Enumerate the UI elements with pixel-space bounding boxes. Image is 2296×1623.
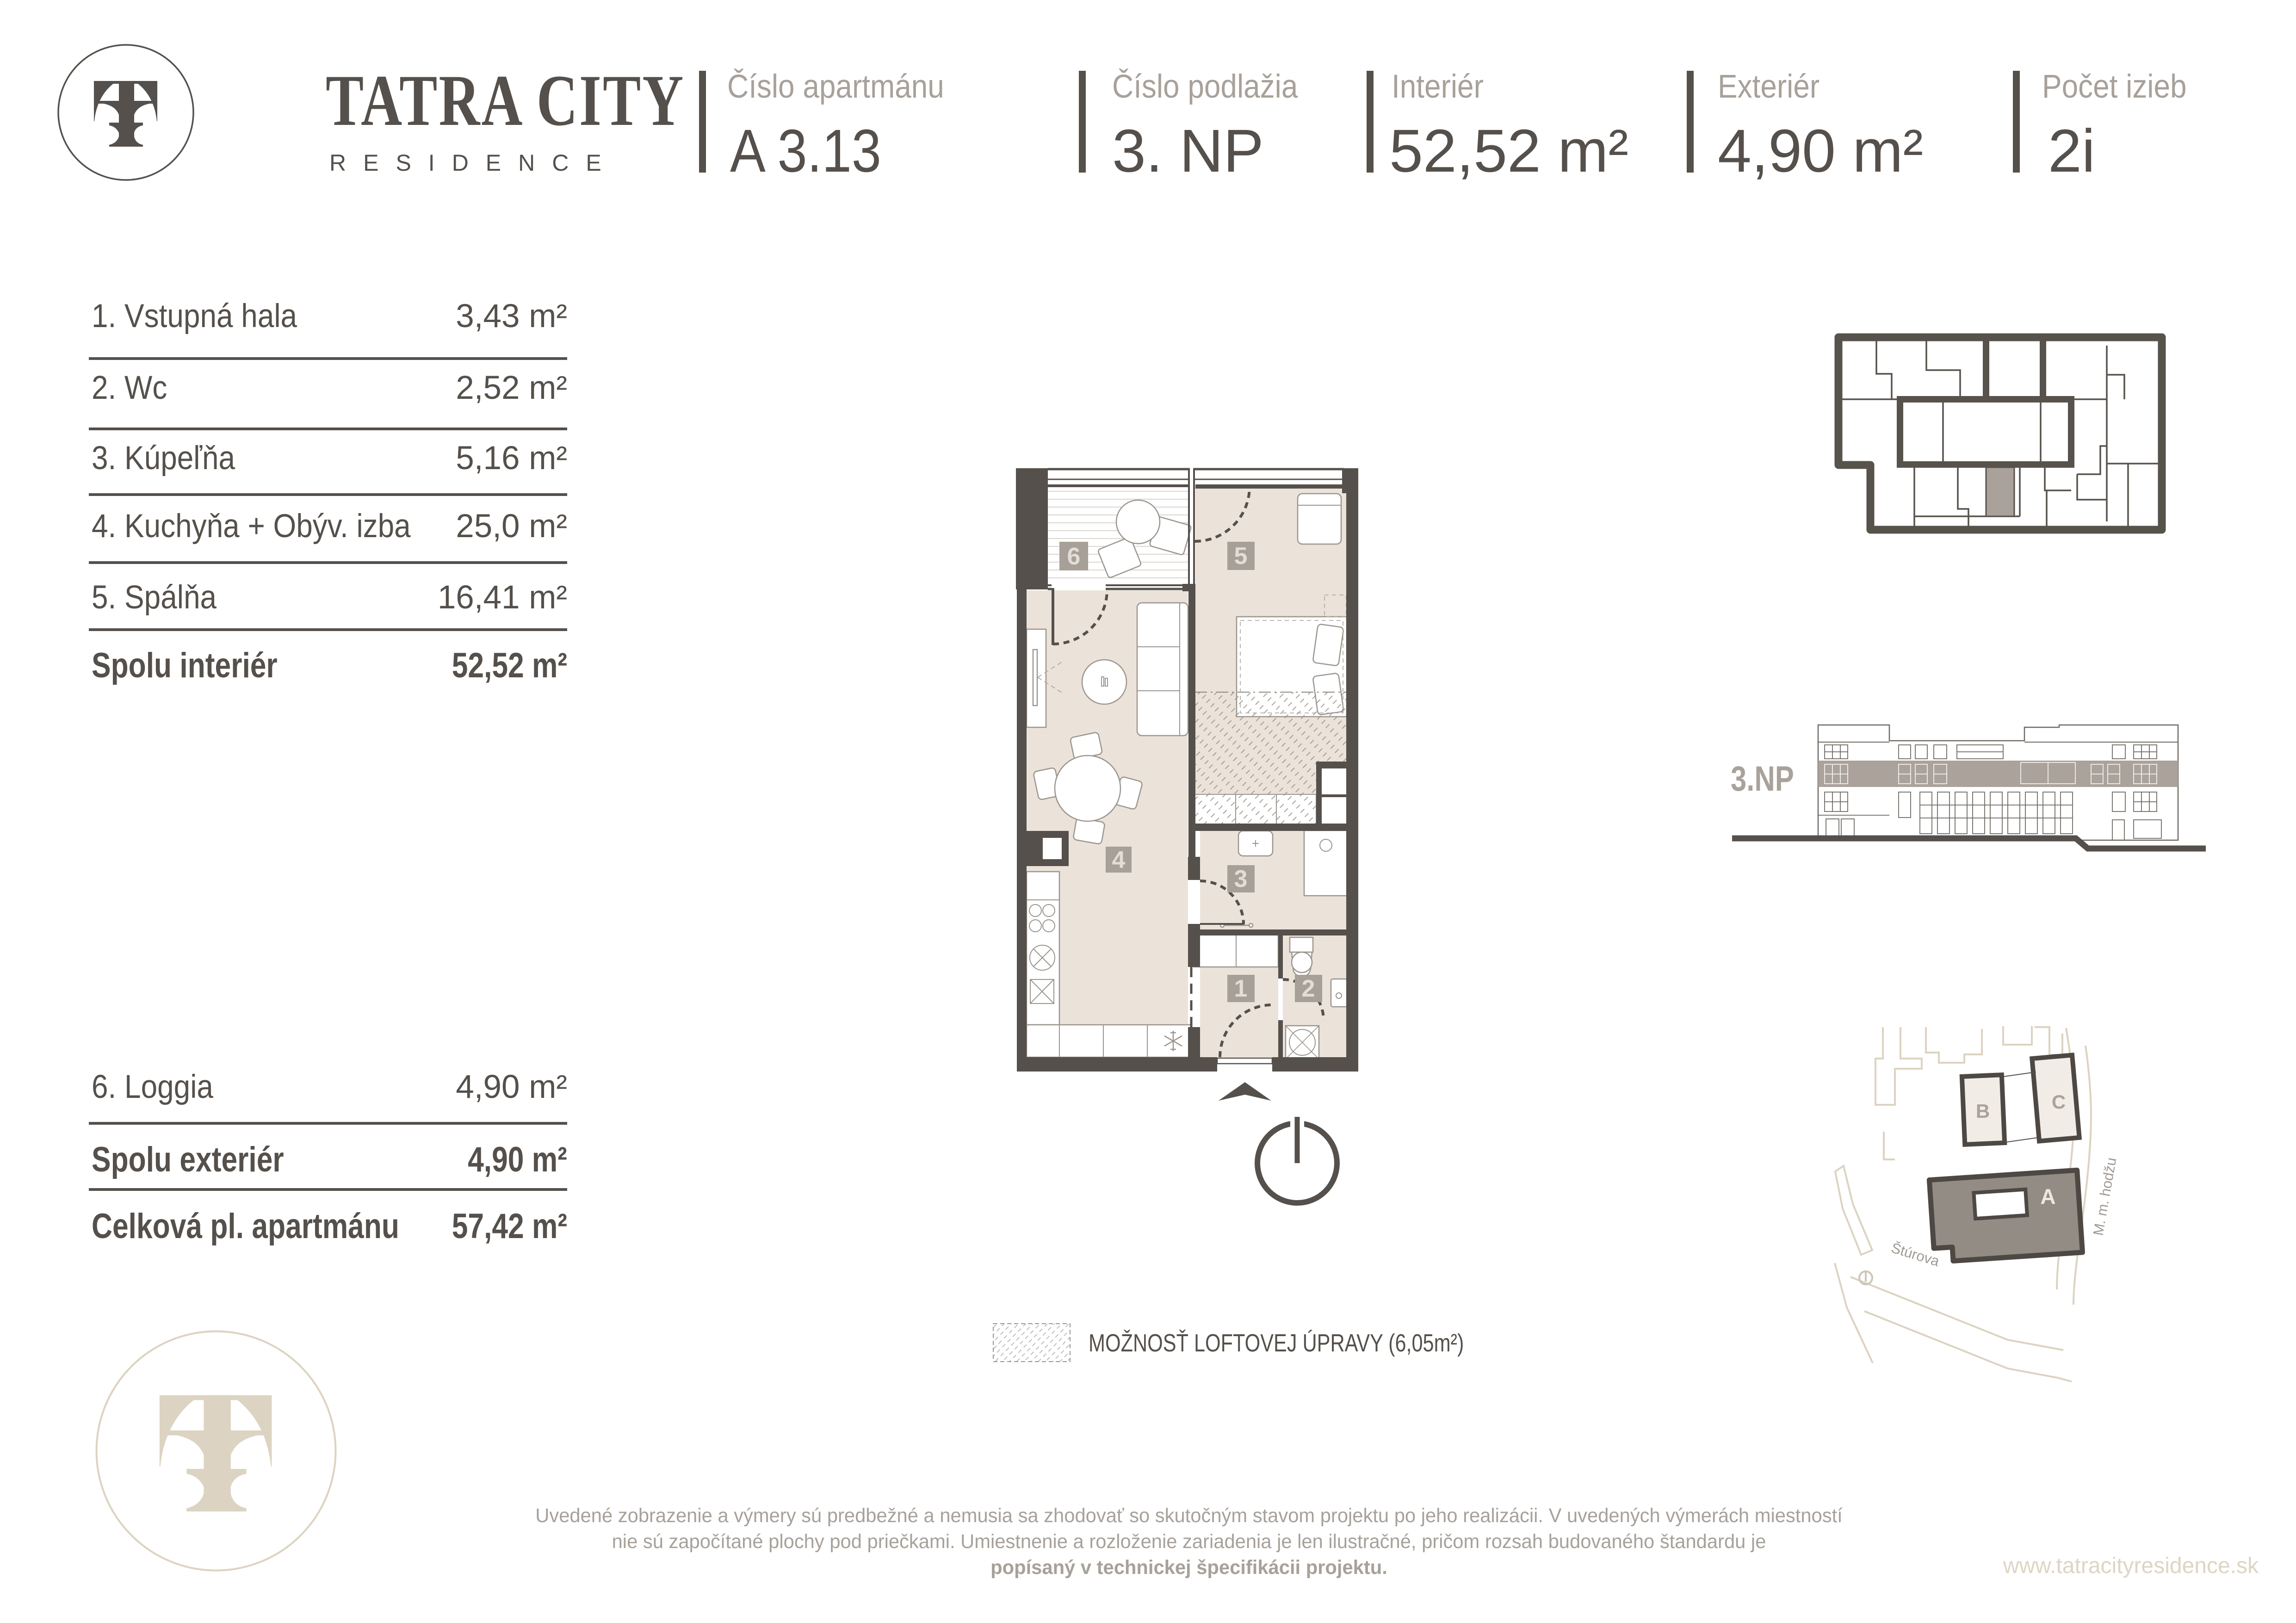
svg-text:B: B	[1976, 1100, 1990, 1122]
svg-text:C: C	[2052, 1091, 2066, 1113]
svg-text:4: 4	[1112, 847, 1126, 873]
svg-text:1: 1	[1234, 975, 1248, 1002]
svg-text:5: 5	[1234, 543, 1248, 570]
svg-text:M. m. hodžu: M. m. hodžu	[2090, 1156, 2119, 1237]
svg-text:2: 2	[1302, 975, 1315, 1002]
svg-text:A: A	[2040, 1184, 2055, 1208]
svg-text:3: 3	[1234, 866, 1248, 892]
svg-text:6: 6	[1067, 543, 1081, 570]
